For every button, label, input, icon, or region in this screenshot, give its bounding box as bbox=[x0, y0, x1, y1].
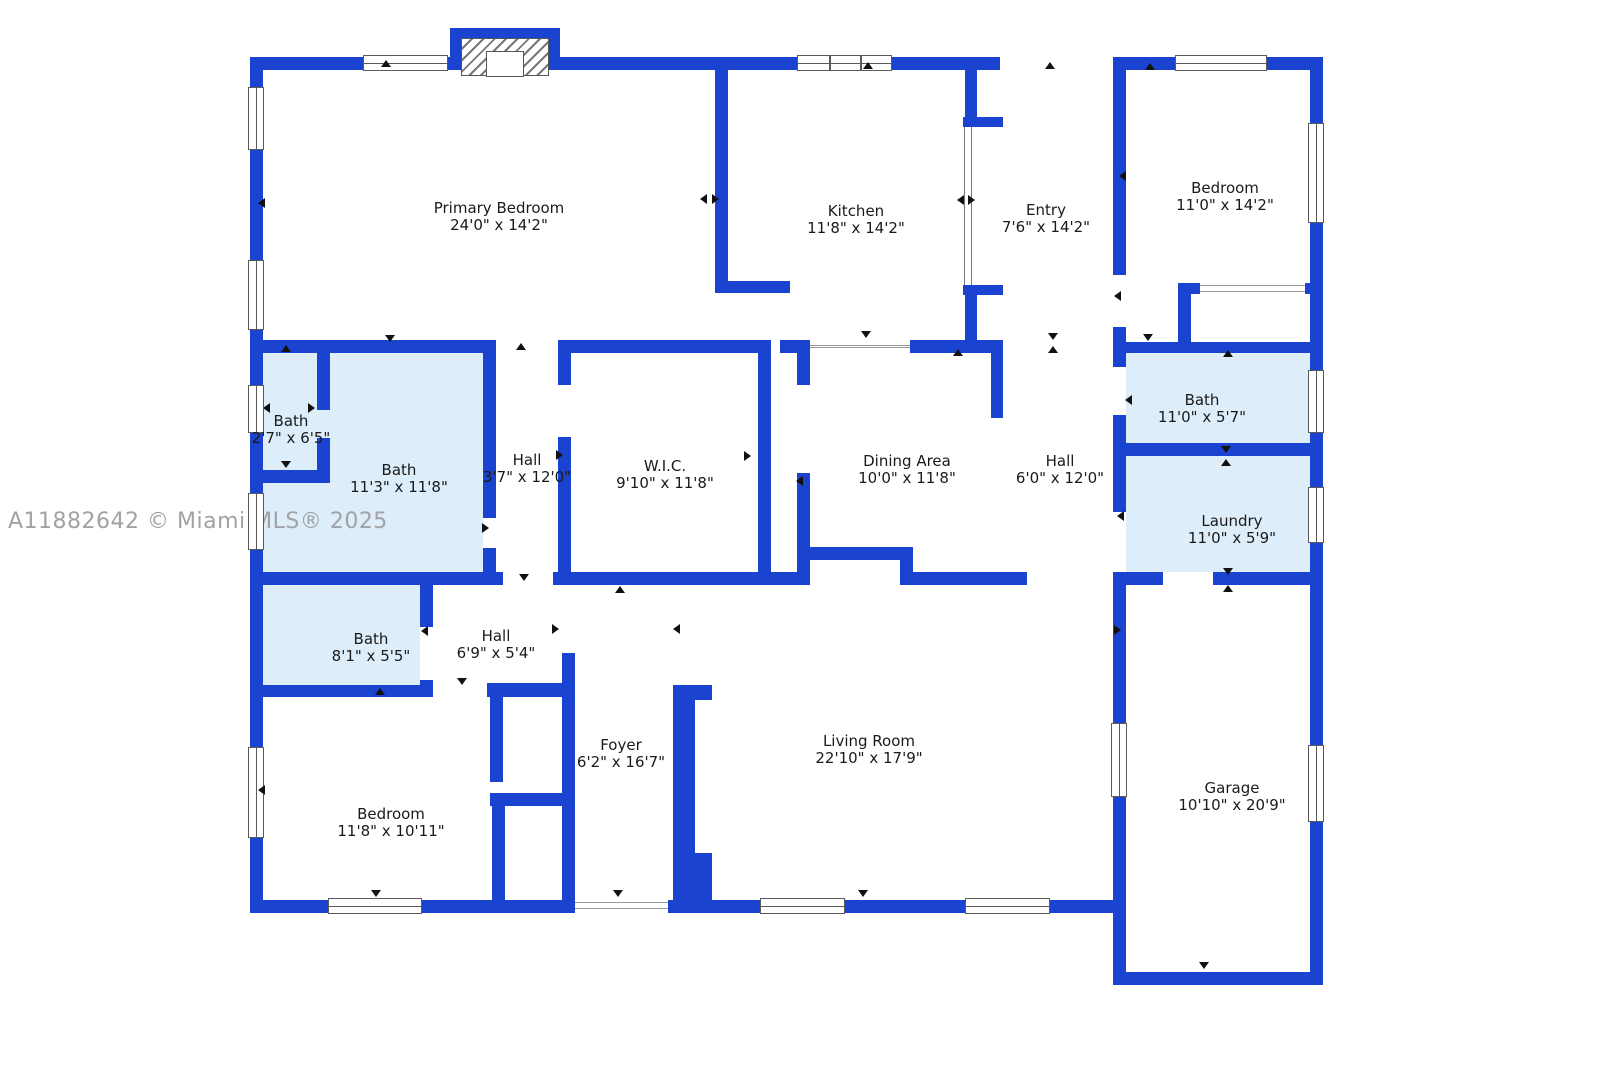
door-marker bbox=[1114, 291, 1121, 301]
fireplace-firebox bbox=[486, 51, 524, 77]
wall-segment bbox=[1113, 342, 1310, 353]
room-name: Hall bbox=[457, 628, 536, 645]
door-marker bbox=[1045, 62, 1055, 69]
room-label-bath-main: Bath 11'3" x 11'8" bbox=[350, 462, 448, 497]
wall-segment bbox=[963, 285, 1003, 295]
wall-segment bbox=[490, 793, 570, 806]
window bbox=[965, 898, 1050, 914]
window-pane-line bbox=[1119, 724, 1120, 796]
wall-segment bbox=[1113, 57, 1126, 275]
window-pane-line bbox=[256, 748, 257, 837]
room-name: Hall bbox=[483, 452, 571, 469]
wall-segment bbox=[1113, 415, 1126, 512]
window bbox=[248, 260, 264, 330]
wall-segment bbox=[492, 806, 505, 913]
window-pane-line bbox=[364, 63, 447, 64]
window bbox=[1308, 745, 1324, 822]
door-marker bbox=[552, 624, 559, 634]
door-marker bbox=[1221, 459, 1231, 466]
door-marker bbox=[858, 890, 868, 897]
door-marker bbox=[1114, 625, 1121, 635]
wall-segment bbox=[420, 582, 433, 627]
door-marker bbox=[258, 198, 265, 208]
wall-segment bbox=[1178, 283, 1200, 294]
door-marker bbox=[519, 574, 529, 581]
door-marker bbox=[385, 335, 395, 342]
window bbox=[248, 493, 264, 550]
window bbox=[248, 87, 264, 150]
window-pane-line bbox=[761, 906, 844, 907]
opening-line bbox=[810, 345, 910, 348]
wall-segment bbox=[913, 572, 1027, 585]
wall-segment bbox=[1113, 797, 1126, 985]
room-name: Bath bbox=[350, 462, 448, 479]
room-label-entry: Entry 7'6" x 14'2" bbox=[1002, 202, 1090, 237]
wall-segment bbox=[728, 281, 790, 293]
window-mullion bbox=[829, 56, 831, 70]
room-label-kitchen: Kitchen 11'8" x 14'2" bbox=[807, 203, 905, 238]
wall-segment bbox=[558, 340, 771, 353]
window bbox=[1308, 123, 1324, 223]
door-marker bbox=[281, 345, 291, 352]
room-dims: 10'10" x 20'9" bbox=[1178, 797, 1285, 814]
door-marker bbox=[1199, 962, 1209, 969]
room-name: W.I.C. bbox=[616, 458, 714, 475]
room-label-bath-sw: Bath 8'1" x 5'5" bbox=[332, 631, 411, 666]
door-marker bbox=[968, 195, 975, 205]
room-name: Kitchen bbox=[807, 203, 905, 220]
door-marker bbox=[1145, 63, 1155, 70]
wall-segment bbox=[483, 340, 496, 518]
wall-segment bbox=[963, 117, 1003, 127]
glass-partition bbox=[964, 127, 972, 285]
door-marker bbox=[1223, 350, 1233, 357]
door-marker bbox=[861, 331, 871, 338]
window-pane-line bbox=[798, 63, 891, 64]
room-name: Primary Bedroom bbox=[434, 200, 565, 217]
wall-segment bbox=[1113, 572, 1126, 723]
door-marker bbox=[457, 678, 467, 685]
room-label-bath-small: Bath 2'7" x 6'5" bbox=[252, 413, 331, 448]
watermark-text: A11882642 © Miami MLS® 2025 bbox=[8, 509, 388, 534]
window bbox=[1308, 370, 1324, 433]
room-name: Living Room bbox=[815, 733, 922, 750]
room-label-hall-2: Hall 6'0" x 12'0" bbox=[1016, 453, 1104, 488]
room-label-hall-3: Hall 6'9" x 5'4" bbox=[457, 628, 536, 663]
room-label-primary-bedroom: Primary Bedroom 24'0" x 14'2" bbox=[434, 200, 565, 235]
door-marker bbox=[1048, 346, 1058, 353]
wall-segment bbox=[263, 470, 325, 483]
wall-segment bbox=[487, 683, 563, 697]
window bbox=[760, 898, 845, 914]
door-marker bbox=[263, 403, 270, 413]
window bbox=[363, 55, 448, 71]
room-dims: 11'8" x 10'11" bbox=[337, 823, 444, 840]
window-pane-line bbox=[256, 261, 257, 329]
room-label-hall-1: Hall 3'7" x 12'0" bbox=[483, 452, 571, 487]
door-marker bbox=[1223, 568, 1233, 575]
door-threshold-line bbox=[575, 902, 668, 909]
door-marker bbox=[863, 62, 873, 69]
window bbox=[328, 898, 422, 914]
room-name: Garage bbox=[1178, 780, 1285, 797]
window-pane-line bbox=[1316, 124, 1317, 222]
door-marker bbox=[796, 476, 803, 486]
window-pane-line bbox=[329, 906, 421, 907]
door-marker bbox=[1119, 171, 1126, 181]
window-pane-line bbox=[1316, 746, 1317, 821]
wall-segment bbox=[673, 853, 712, 913]
window bbox=[1175, 55, 1267, 71]
room-label-wic: W.I.C. 9'10" x 11'8" bbox=[616, 458, 714, 493]
room-dims: 24'0" x 14'2" bbox=[434, 217, 565, 234]
closet-sliding-door bbox=[1200, 285, 1305, 292]
door-marker bbox=[1143, 334, 1153, 341]
room-label-bedroom-ne: Bedroom 11'0" x 14'2" bbox=[1176, 180, 1274, 215]
door-marker bbox=[712, 194, 719, 204]
room-dims: 11'8" x 14'2" bbox=[807, 220, 905, 237]
door-marker bbox=[1048, 333, 1058, 340]
wall-segment bbox=[553, 572, 810, 585]
door-marker bbox=[613, 890, 623, 897]
room-name: Bedroom bbox=[1176, 180, 1274, 197]
room-dims: 10'0" x 11'8" bbox=[858, 470, 956, 487]
wall-segment bbox=[263, 685, 433, 697]
room-label-bath-wing: Bath 11'0" x 5'7" bbox=[1158, 392, 1246, 427]
window-pane-line bbox=[966, 906, 1049, 907]
window-mullion bbox=[860, 56, 862, 70]
door-marker bbox=[953, 349, 963, 356]
room-name: Bedroom bbox=[337, 806, 444, 823]
room-dims: 7'6" x 14'2" bbox=[1002, 219, 1090, 236]
wall-segment bbox=[673, 685, 712, 700]
wall-segment bbox=[1113, 572, 1163, 585]
room-dims: 9'10" x 11'8" bbox=[616, 475, 714, 492]
wall-segment bbox=[758, 340, 771, 585]
wall-segment bbox=[715, 57, 728, 293]
room-label-garage: Garage 10'10" x 20'9" bbox=[1178, 780, 1285, 815]
window-pane-line bbox=[1316, 488, 1317, 542]
wall-segment bbox=[797, 473, 810, 585]
door-marker bbox=[258, 785, 265, 795]
room-dims: 22'10" x 17'9" bbox=[815, 750, 922, 767]
wall-segment bbox=[1113, 972, 1323, 985]
door-marker bbox=[281, 461, 291, 468]
room-dims: 3'7" x 12'0" bbox=[483, 469, 571, 486]
wall-segment bbox=[490, 697, 503, 782]
door-marker bbox=[1223, 585, 1233, 592]
room-label-bedroom-sw: Bedroom 11'8" x 10'11" bbox=[337, 806, 444, 841]
door-marker bbox=[673, 624, 680, 634]
door-marker bbox=[421, 626, 428, 636]
window-pane-line bbox=[256, 88, 257, 149]
wall-segment bbox=[668, 900, 1126, 913]
room-dims: 6'0" x 12'0" bbox=[1016, 470, 1104, 487]
room-dims: 11'0" x 5'9" bbox=[1188, 530, 1276, 547]
room-dims: 11'0" x 5'7" bbox=[1158, 409, 1246, 426]
door-marker bbox=[371, 890, 381, 897]
wall-segment bbox=[780, 340, 810, 353]
door-marker bbox=[700, 194, 707, 204]
room-name: Dining Area bbox=[858, 453, 956, 470]
room-name: Bath bbox=[332, 631, 411, 648]
room-label-dining-area: Dining Area 10'0" x 11'8" bbox=[858, 453, 956, 488]
room-name: Bath bbox=[1158, 392, 1246, 409]
room-label-foyer: Foyer 6'2" x 16'7" bbox=[577, 737, 665, 772]
wall-segment bbox=[1305, 283, 1323, 294]
door-marker bbox=[744, 451, 751, 461]
door-marker bbox=[957, 195, 964, 205]
door-marker bbox=[482, 523, 489, 533]
room-dims: 2'7" x 6'5" bbox=[252, 430, 331, 447]
wall-segment bbox=[250, 572, 503, 585]
door-marker bbox=[615, 586, 625, 593]
room-name: Bath bbox=[252, 413, 331, 430]
wall-segment bbox=[807, 547, 913, 560]
room-label-living-room: Living Room 22'10" x 17'9" bbox=[815, 733, 922, 768]
door-marker bbox=[381, 60, 391, 67]
door-marker bbox=[375, 688, 385, 695]
room-name: Entry bbox=[1002, 202, 1090, 219]
window bbox=[1308, 487, 1324, 543]
wall-segment bbox=[1126, 443, 1310, 456]
floor-plan: A11882642 © Miami MLS® 2025 bbox=[0, 0, 1600, 1070]
door-marker bbox=[1125, 395, 1132, 405]
door-marker bbox=[308, 403, 315, 413]
room-dims: 8'1" x 5'5" bbox=[332, 648, 411, 665]
wall-segment bbox=[673, 685, 695, 853]
room-dims: 11'3" x 11'8" bbox=[350, 479, 448, 496]
window-pane-line bbox=[1176, 63, 1266, 64]
window bbox=[797, 55, 892, 71]
door-marker bbox=[1221, 446, 1231, 453]
room-dims: 6'2" x 16'7" bbox=[577, 754, 665, 771]
room-name: Foyer bbox=[577, 737, 665, 754]
wall-segment bbox=[562, 653, 575, 913]
room-dims: 6'9" x 5'4" bbox=[457, 645, 536, 662]
room-name: Hall bbox=[1016, 453, 1104, 470]
door-marker bbox=[516, 343, 526, 350]
window-pane-line bbox=[1316, 371, 1317, 432]
room-name: Laundry bbox=[1188, 513, 1276, 530]
room-dims: 11'0" x 14'2" bbox=[1176, 197, 1274, 214]
window bbox=[1111, 723, 1127, 797]
door-marker bbox=[1117, 511, 1124, 521]
room-label-laundry: Laundry 11'0" x 5'9" bbox=[1188, 513, 1276, 548]
window-pane-line bbox=[256, 494, 257, 549]
